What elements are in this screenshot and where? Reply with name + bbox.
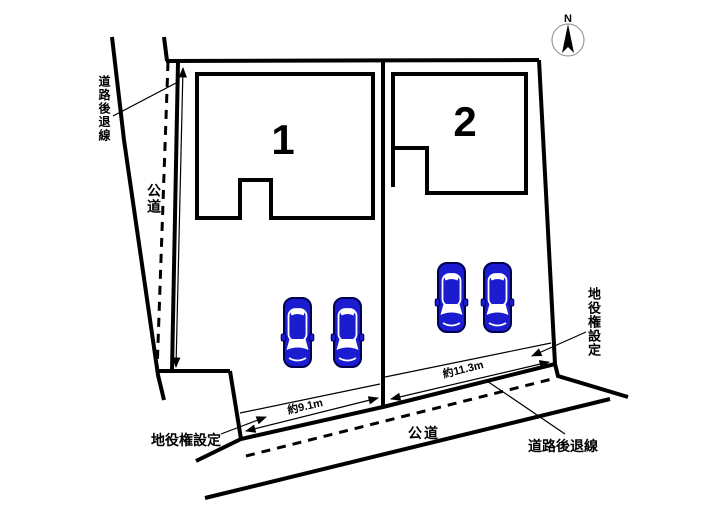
label-road-setback-line-bottom-right: 道路後退線 — [528, 436, 598, 456]
compass-north-label: N — [560, 13, 576, 25]
left-road-outer-edge — [112, 37, 164, 400]
easement-bottom-left-leader-line — [221, 417, 266, 434]
label-road-setback-line-left: 道路後退線 — [96, 75, 113, 143]
lot-top-boundary — [166, 60, 539, 61]
car-icon — [481, 263, 514, 332]
easement-right-leader-line — [532, 332, 586, 356]
car-icon — [331, 298, 364, 367]
compass-needle-icon — [562, 24, 574, 53]
left-road-setback-dashed-line — [157, 62, 168, 372]
road-edge-continuation-right — [555, 364, 628, 397]
lot-frontage-boundary — [196, 364, 555, 461]
lot2-right-boundary — [539, 60, 555, 364]
label-public-road-left: 公道 — [144, 183, 164, 215]
label-easement-bottom-left: 地役権設定 — [151, 430, 221, 450]
car-icon — [435, 263, 468, 332]
label-easement-right: 地役権設定 — [584, 287, 603, 357]
car-icon — [281, 298, 314, 367]
lot-2-number: 2 — [445, 100, 485, 144]
compass — [552, 24, 584, 56]
lot-layout-plan: 道路後退線 公道 地役権設定 公道 道路後退線 地役権設定 約9.1m 約11.… — [0, 0, 705, 525]
label-public-road-bottom: 公道 — [408, 423, 440, 443]
top-left-road-edge — [164, 37, 167, 61]
lot-1-number: 1 — [263, 118, 303, 162]
